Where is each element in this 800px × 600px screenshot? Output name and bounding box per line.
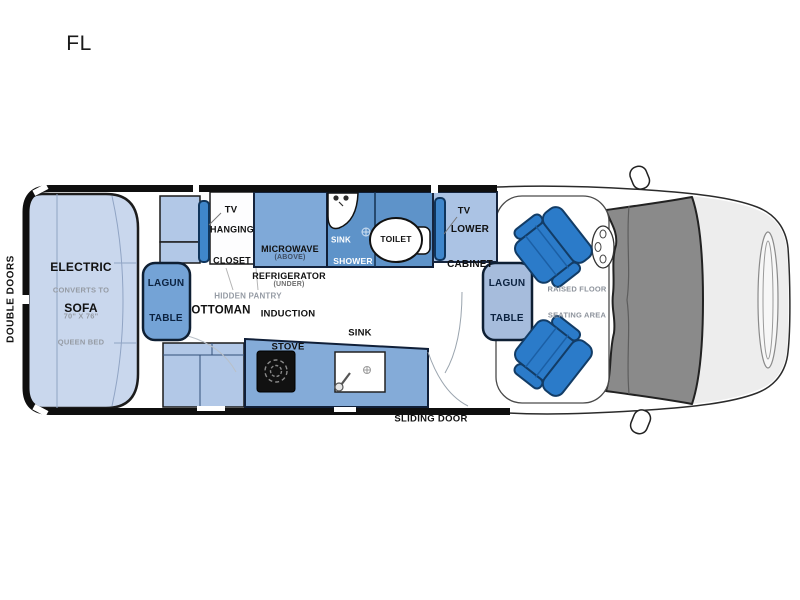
refrigerator-label: REFRIGERATOR xyxy=(252,271,326,281)
shower-drain-icon xyxy=(362,228,370,236)
kitchen-sink-icon xyxy=(335,352,385,392)
side-mirror-top-icon xyxy=(628,164,652,192)
steering-wheel-icon xyxy=(592,226,614,268)
lower-cabinet-label: LOWER CABINET xyxy=(447,201,493,293)
induction-stove-label: INDUCTION STOVE xyxy=(261,287,316,374)
floorplan-canvas: FL DOUBLE DOORS ELECTRIC SOFA CONVERTS T… xyxy=(0,0,800,600)
sofa-converts-note: CONVERTS TO 70" X 76" QUEEN BED xyxy=(53,270,109,365)
kitchen-sink-label: SINK xyxy=(348,329,372,340)
plan-code: FL xyxy=(66,32,92,56)
van-floorplan-drawing xyxy=(0,0,800,600)
front-tv-icon xyxy=(435,198,445,260)
ottoman-label: OTTOMAN xyxy=(191,304,250,317)
shower-label: SHOWER xyxy=(333,257,372,267)
microwave-label: MICROWAVE xyxy=(261,244,319,254)
entry-step-contour xyxy=(428,352,468,406)
double-doors-label: DOUBLE DOORS xyxy=(5,255,17,343)
lagun-table-front-label: LAGUN TABLE xyxy=(489,255,526,347)
rear-tv-icon xyxy=(199,201,209,262)
wardrobe-cabinet-upper xyxy=(160,196,200,242)
windshield-glass xyxy=(606,197,703,404)
aisle-contour xyxy=(445,292,462,373)
sliding-door-label: SLIDING DOOR xyxy=(394,415,467,426)
front-grille-icon xyxy=(758,232,778,368)
lagun-table-rear-label: LAGUN TABLE xyxy=(148,255,185,347)
raised-floor-label: RAISED FLOOR SEATING AREA xyxy=(547,269,606,338)
microwave-sub-label: (ABOVE) xyxy=(275,254,306,262)
ottoman-base-cabinet xyxy=(163,343,244,407)
toilet-label: TOILET xyxy=(380,235,411,245)
hanging-closet-label: HANGING CLOSET xyxy=(210,204,254,287)
bath-sink-label: SINK xyxy=(331,235,351,244)
